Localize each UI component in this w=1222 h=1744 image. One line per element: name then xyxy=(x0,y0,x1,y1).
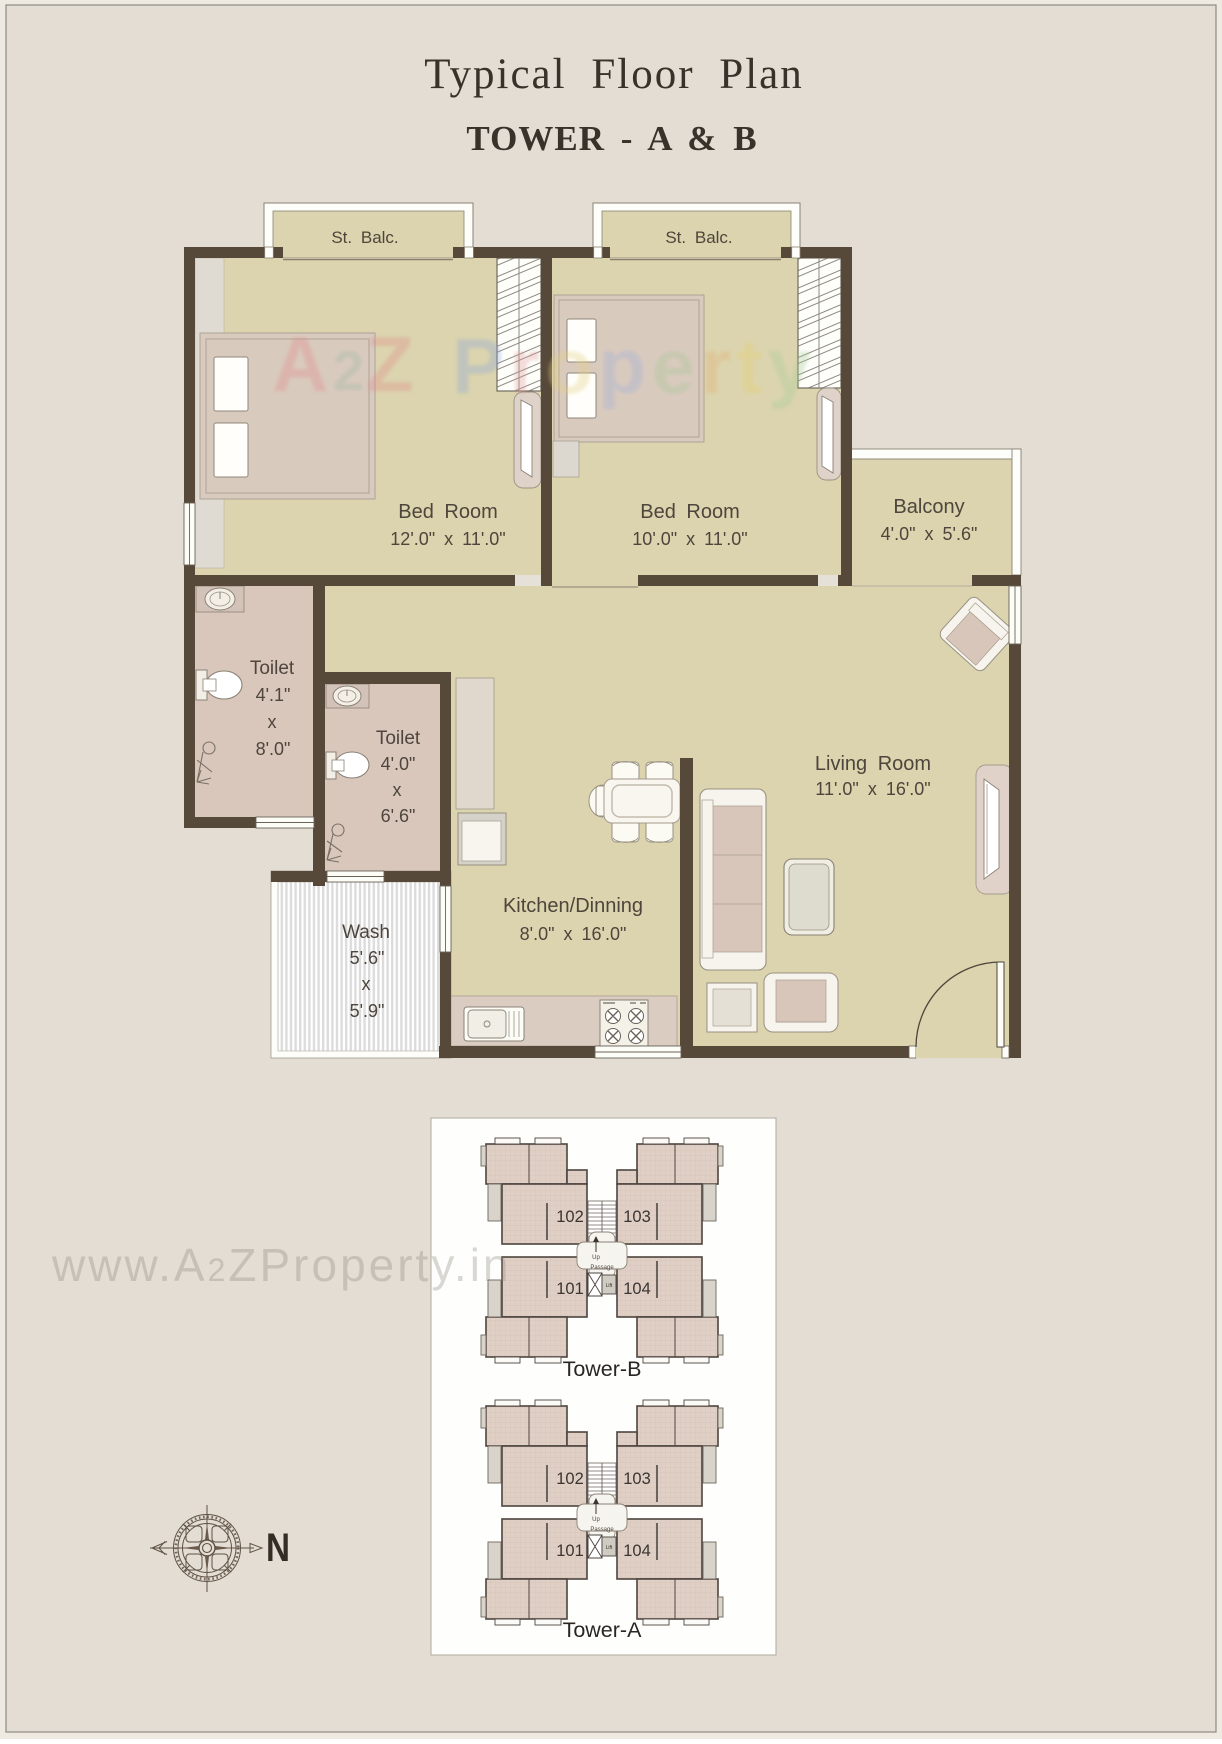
svg-text:Lift: Lift xyxy=(606,1283,613,1289)
svg-text:Bed Room: Bed Room xyxy=(640,501,740,523)
svg-text:Z: Z xyxy=(366,320,414,408)
svg-text:Typical Floor Plan: Typical Floor Plan xyxy=(424,51,803,98)
svg-text:4'.0" x 5'.6": 4'.0" x 5'.6" xyxy=(881,524,978,544)
svg-text:Kitchen/Dinning: Kitchen/Dinning xyxy=(503,895,643,917)
svg-text:Toilet: Toilet xyxy=(250,658,295,679)
svg-text:Wash: Wash xyxy=(342,922,390,943)
svg-text:Passage: Passage xyxy=(590,1265,614,1271)
svg-text:4'.0": 4'.0" xyxy=(381,754,416,774)
svg-text:Living Room: Living Room xyxy=(815,753,931,775)
svg-text:Balcony: Balcony xyxy=(893,496,964,518)
svg-text:St. Balc.: St. Balc. xyxy=(665,228,732,247)
svg-text:x: x xyxy=(268,712,277,732)
svg-text:101: 101 xyxy=(556,1280,584,1298)
svg-text:8'.0" x 16'.0": 8'.0" x 16'.0" xyxy=(520,924,627,944)
svg-text:6'.6": 6'.6" xyxy=(381,806,416,826)
svg-text:x: x xyxy=(362,974,371,994)
svg-text:www.A2ZProperty.in: www.A2ZProperty.in xyxy=(51,1239,512,1291)
svg-text:Bed Room: Bed Room xyxy=(398,501,498,523)
svg-text:103: 103 xyxy=(623,1208,651,1226)
svg-text:10'.0" x 11'.0": 10'.0" x 11'.0" xyxy=(632,529,747,549)
svg-text:St. Balc.: St. Balc. xyxy=(331,228,398,247)
svg-text:102: 102 xyxy=(556,1208,584,1226)
svg-text:Up: Up xyxy=(592,1255,600,1261)
svg-text:2: 2 xyxy=(333,339,364,402)
svg-text:Tower-A: Tower-A xyxy=(563,1618,643,1642)
svg-text:5'.6": 5'.6" xyxy=(350,948,385,968)
svg-text:N: N xyxy=(266,1526,290,1570)
svg-text:A: A xyxy=(272,320,328,408)
svg-text:104: 104 xyxy=(623,1280,651,1298)
svg-text:x: x xyxy=(393,780,402,800)
svg-text:TOWER - A & B: TOWER - A & B xyxy=(466,119,757,158)
svg-text:5'.9": 5'.9" xyxy=(350,1001,385,1021)
svg-text:4'.1": 4'.1" xyxy=(256,685,291,705)
svg-text:12'.0" x 11'.0": 12'.0" x 11'.0" xyxy=(390,529,505,549)
svg-text:8'.0": 8'.0" xyxy=(256,739,291,759)
svg-text:Toilet: Toilet xyxy=(376,728,421,749)
svg-text:Property: Property xyxy=(452,322,817,410)
svg-text:11'.0" x 16'.0": 11'.0" x 16'.0" xyxy=(815,779,930,799)
svg-text:Tower-B: Tower-B xyxy=(563,1357,642,1381)
